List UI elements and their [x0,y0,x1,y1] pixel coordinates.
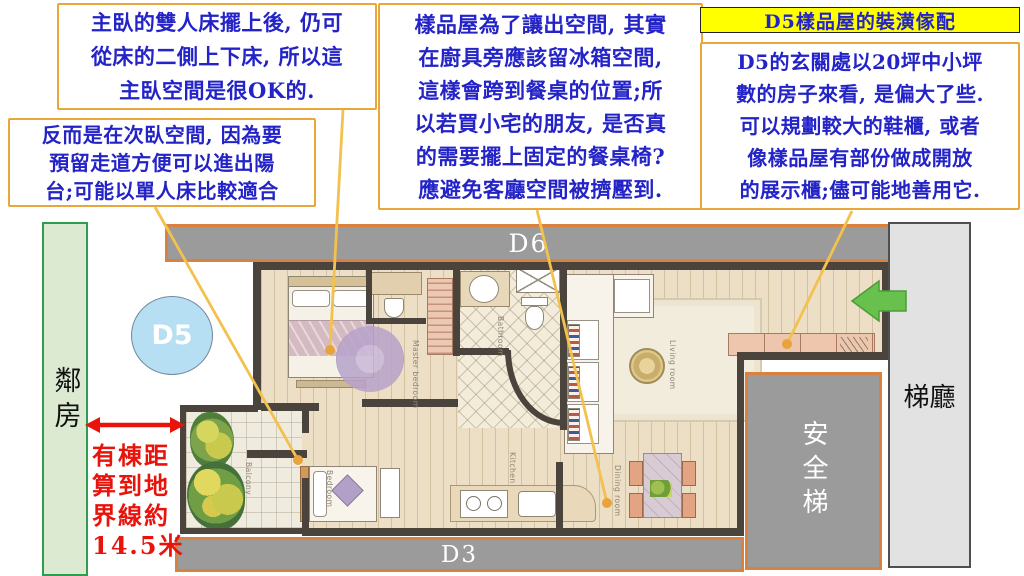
master-rug [336,326,404,392]
elevator-hall-zone: 梯廳 [888,222,971,568]
slide-title-text: D5樣品屋的裝潢傢配 [764,7,956,34]
dining-chair-3 [682,461,696,486]
neighbor-building-zone: 鄰房 [42,222,88,576]
wall-balcony-top [180,405,258,412]
sofa-pillow-1 [568,324,580,357]
wall-living-east [737,352,744,536]
unit-d5-label: D5 [151,320,192,351]
unit-d3-bar: D3 [175,537,744,572]
bath-toilet-bowl [525,306,544,330]
wall-bedroom2-kitchen [556,462,563,528]
master-pillow-left [292,290,330,307]
note-line: 從床的二側上下床, 所以這 [59,40,375,74]
fire-stairs-label: 安全梯 [795,420,832,522]
wall-master-south-west [261,403,319,411]
note-line: 的需要擺上固定的餐桌椅? [380,140,701,173]
room-label-bedroom: Bedroom [325,470,334,507]
room-label-kitchen: Kitchen [508,452,517,484]
wall-nook-east [366,264,372,322]
coffee-table [629,348,665,384]
room-label-balcony: Balcony [244,462,253,495]
note-line: 主臥的雙人床擺上後, 仍可 [59,6,375,40]
unit-d6-label: D6 [509,229,549,258]
note-line: 在廚具旁應該留冰箱空間, [380,41,701,74]
kitchen-burner-1 [466,496,481,511]
fire-stairs-zone: 安全梯 [745,372,882,570]
note-line: 樣品屋為了讓出空間, 其實 [380,8,701,41]
note-second-bedroom: 反而是在次臥空間, 因為要 預留走道方便可以進出陽 台;可能以單人床比較適合 [8,118,316,207]
room-label-master: Master bedroom [411,340,420,409]
wall-hall-balustrade [247,450,307,458]
note-line: 應避免客廳空間被擠壓到. [380,173,701,206]
wall-bath-east [560,264,567,430]
note-line: 的展示櫃;儘可能地善用它. [702,174,1018,206]
room-label-bathroom: Bathroom [496,316,505,357]
bath-basin [469,275,499,303]
note-line: 這樣會跨到餐桌的位置;所 [380,74,701,107]
wall-bath-west [453,264,460,356]
wall-hall-step [362,399,458,407]
unit-d5-badge: D5 [131,296,213,375]
master-pillow-right [333,290,370,307]
note-line: 以若買小宅的朋友, 是否真 [380,107,701,140]
bath-shower-niche [516,267,560,293]
slide-title: D5樣品屋的裝潢傢配 [700,7,1020,33]
wall-master-left [253,262,261,410]
kitchen-sink [518,491,556,517]
bath-toilet-tank [521,297,548,306]
elevator-hall-label: 梯廳 [903,377,955,414]
note-line: 反而是在次臥空間, 因為要 [10,121,314,149]
note-line: 預留走道方便可以進出陽 [10,149,314,177]
distance-line: 界線約 [92,501,202,531]
dining-plant [650,480,672,497]
note-kitchen-dining: 樣品屋為了讓出空間, 其實 在廚具旁應該留冰箱空間, 這樣會跨到餐桌的位置;所 … [378,3,703,210]
note-line: D5的玄關處以20坪中小坪 [702,46,1018,78]
room-label-dining: Dining room [613,465,622,517]
distance-line: 算到地 [92,471,202,501]
master-vanity [370,272,422,295]
note-line: 台;可能以單人床比較適合 [10,177,314,205]
entry-plant-sketch [840,337,868,352]
wall-corridor-south [737,352,890,360]
wall-balcony-right-lower [302,478,309,534]
kitchen-burner-2 [487,496,502,511]
distance-line: 有棟距 [92,441,202,471]
wall-top [253,262,890,270]
unit-d6-bar: D6 [165,224,892,262]
slide-canvas: Master bedroom Bathroom Balcony Bedroom … [0,0,1024,576]
wall-nook-south [366,318,426,324]
sofa-pillow-3 [568,408,580,441]
wall-bottom [302,528,744,536]
note-master-bedroom: 主臥的雙人床擺上後, 仍可 從床的二側上下床, 所以這 主臥空間是很OK的. [57,3,377,110]
neighbor-label: 鄰房 [46,366,85,574]
note-line: 像樣品屋有部份做成開放 [702,142,1018,174]
wall-balcony-right-upper [302,405,309,433]
sofa-chaise-cushion [614,279,650,313]
note-line: 可以規劃較大的鞋櫃, 或者 [702,110,1018,142]
bedroom2-nightstand [380,468,400,518]
sofa-pillow-2 [568,366,580,399]
master-wardrobe [427,278,453,355]
distance-line: 14.5米 [92,531,202,561]
note-line: 主臥空間是很OK的. [59,74,375,108]
dining-chair-2 [629,493,643,518]
dining-chair-4 [682,493,696,518]
room-label-living: Living room [668,340,677,390]
distance-note: 有棟距 算到地 界線約 14.5米 [92,441,202,561]
note-line: 數的房子來看, 是偏大了些. [702,78,1018,110]
unit-d3-label: D3 [441,542,478,568]
note-entry: D5的玄關處以20坪中小坪 數的房子來看, 是偏大了些. 可以規劃較大的鞋櫃, … [700,42,1020,210]
dining-chair-1 [629,461,643,486]
master-toilet [384,298,404,318]
